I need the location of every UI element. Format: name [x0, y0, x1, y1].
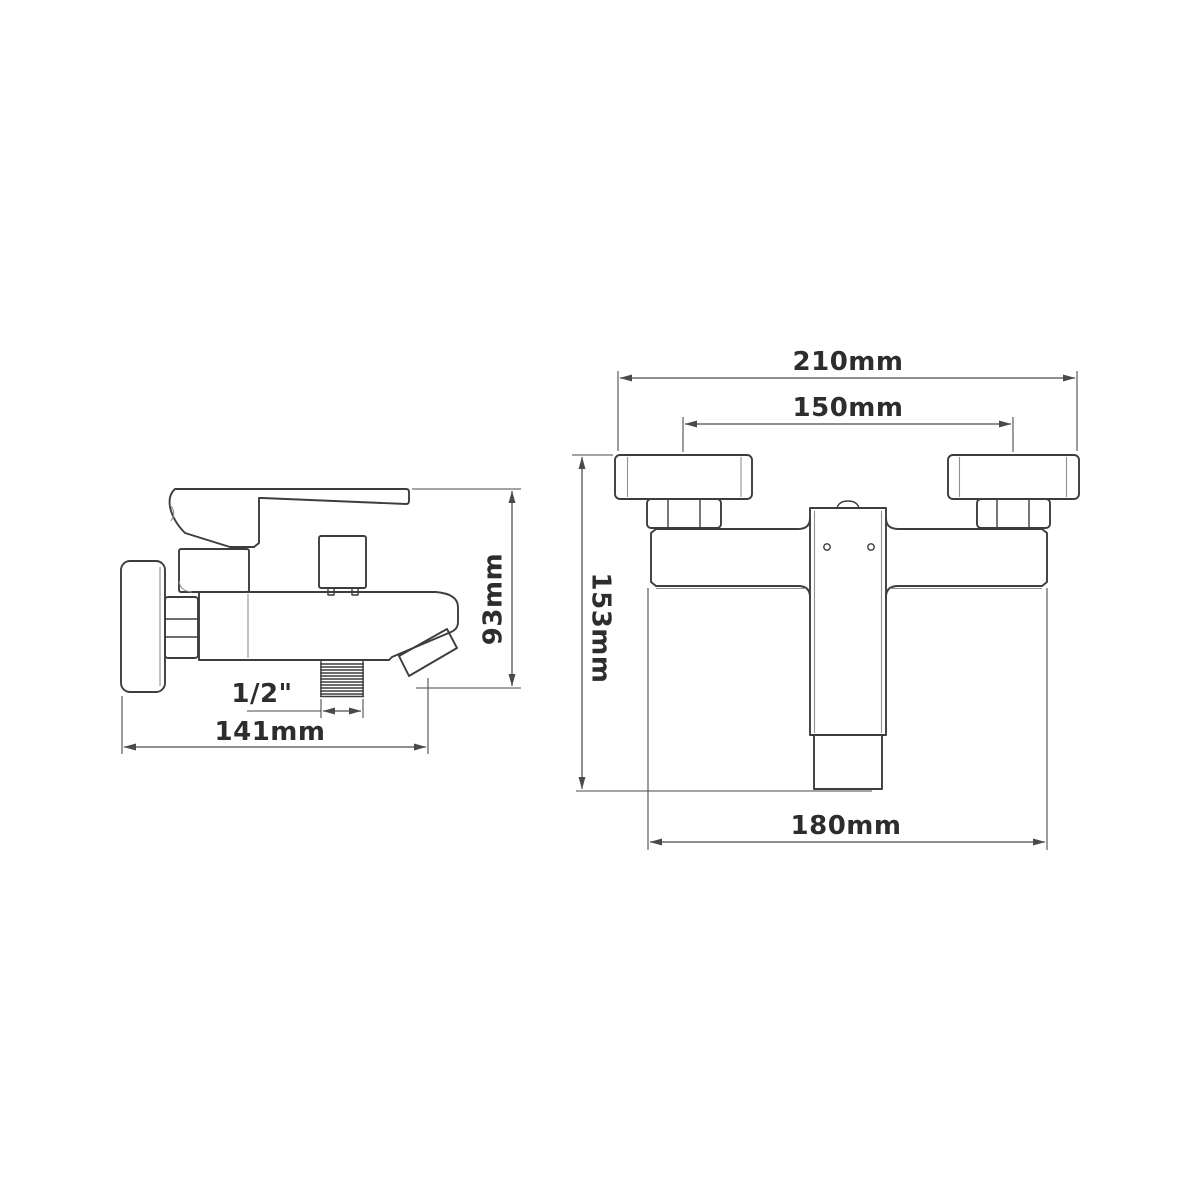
front-right-arm	[886, 518, 1047, 597]
dim-180mm: 180mm	[648, 588, 1047, 850]
dim-150mm: 150mm	[683, 393, 1013, 452]
front-left-flange	[615, 455, 752, 499]
dim-label-150mm: 150mm	[793, 393, 904, 423]
side-spout-nozzle	[399, 629, 457, 676]
dim-153mm: 153mm	[572, 455, 872, 791]
front-left-arm	[651, 518, 810, 597]
side-body	[199, 592, 458, 660]
side-shower-outlet-thread	[320, 661, 364, 697]
dim-label-141mm: 141mm	[215, 717, 326, 747]
front-screw-hole-right	[868, 544, 874, 550]
side-diverter-knob	[319, 536, 366, 595]
front-lever-hub	[837, 501, 859, 508]
side-cartridge-neck	[179, 549, 249, 592]
dim-label-180mm: 180mm	[791, 811, 902, 841]
dim-label-210mm: 210mm	[793, 347, 904, 377]
front-right-nut	[977, 499, 1050, 528]
side-wall-flange	[121, 561, 165, 692]
dim-label-153mm: 153mm	[586, 573, 616, 684]
front-view: 210mm 150mm 153mm 180mm	[572, 347, 1079, 850]
bath-mixer-dimensional-drawing: 93mm 141mm 1/2"	[0, 0, 1200, 1200]
front-left-nut	[647, 499, 721, 528]
front-right-flange	[948, 455, 1079, 499]
front-spout	[814, 735, 882, 789]
dim-93mm: 93mm	[412, 489, 521, 688]
front-screw-hole-left	[824, 544, 830, 550]
side-handle-lever	[170, 489, 409, 547]
technical-drawing-page: 93mm 141mm 1/2"	[0, 0, 1200, 1200]
side-mounting-nut	[165, 597, 198, 658]
dim-label-half-inch: 1/2"	[231, 679, 292, 709]
side-neck-fillet	[179, 581, 192, 592]
side-view: 93mm 141mm 1/2"	[121, 489, 521, 754]
front-body	[810, 501, 886, 735]
dim-label-93mm: 93mm	[479, 553, 509, 645]
